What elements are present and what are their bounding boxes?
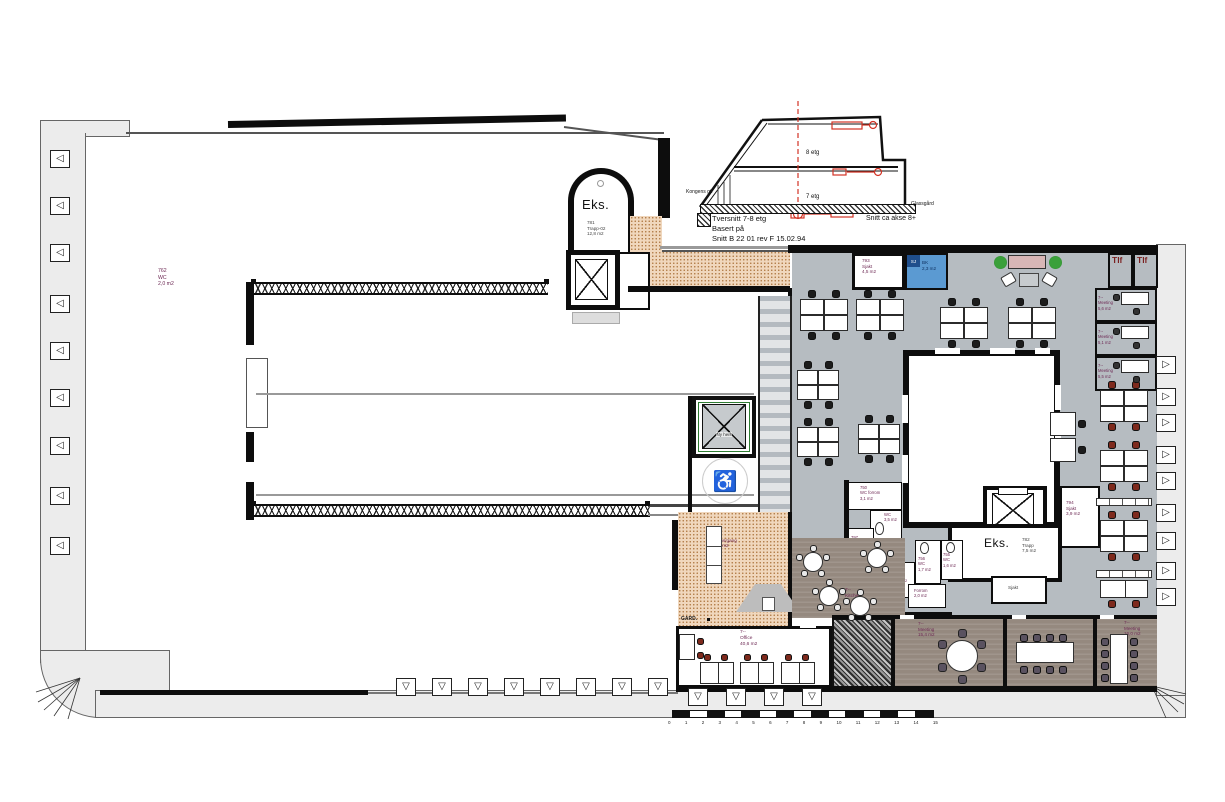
desk xyxy=(1100,520,1124,536)
chair xyxy=(972,340,980,348)
wheelchair-turning-circle: ♿ xyxy=(702,458,748,504)
section-floor8-label: 8 etg xyxy=(806,150,819,156)
scale-tick-label: 4 xyxy=(735,720,738,725)
chair xyxy=(1040,340,1048,348)
desk xyxy=(1032,323,1056,339)
chair xyxy=(1113,362,1120,369)
scale-tick-label: 13 xyxy=(894,720,899,725)
atrium-roof-line2 xyxy=(256,494,754,496)
chair xyxy=(848,614,855,621)
plant xyxy=(994,256,1007,269)
desk xyxy=(964,307,988,323)
chair xyxy=(697,652,704,659)
core-window-gap xyxy=(990,348,1015,354)
column-strip xyxy=(758,296,792,512)
label-line: 5,1 m2 xyxy=(1098,340,1113,345)
chair xyxy=(977,663,986,672)
desk xyxy=(940,307,964,323)
desk xyxy=(824,315,848,331)
desk xyxy=(1050,412,1076,436)
scale-tick-label: 15 xyxy=(933,720,938,725)
corridor-north-bottom-wall xyxy=(628,286,790,292)
desk xyxy=(740,662,774,684)
desk xyxy=(1032,307,1056,323)
chair xyxy=(870,598,877,605)
chair xyxy=(832,290,840,298)
chair xyxy=(1108,483,1116,491)
window-symbol: ▽ xyxy=(764,688,784,706)
chair xyxy=(1033,634,1041,642)
desk xyxy=(1100,450,1124,466)
chair xyxy=(887,550,894,557)
desk xyxy=(1100,536,1124,552)
atrium-top-glazing xyxy=(254,282,548,295)
bk-tag-text: SJ xyxy=(911,259,916,264)
label-line: 7,5 m2 xyxy=(1022,548,1036,554)
desk xyxy=(781,662,815,684)
counter xyxy=(1096,570,1152,578)
chair xyxy=(721,654,728,661)
chair xyxy=(874,541,881,548)
scale-bar-segment xyxy=(864,711,881,717)
room-label-trapp781: 781 Trapp-02 12,8 m2 xyxy=(587,220,605,237)
desk xyxy=(856,315,880,331)
chair xyxy=(1113,294,1120,301)
chair xyxy=(826,579,833,586)
chair xyxy=(886,455,894,463)
chair xyxy=(865,415,873,423)
chair xyxy=(697,638,704,645)
desk xyxy=(800,299,824,315)
chair xyxy=(1108,553,1116,561)
chair xyxy=(860,550,867,557)
window-symbol: ◁ xyxy=(50,389,70,407)
core-window-gap xyxy=(1055,385,1061,410)
toilet-fixture xyxy=(946,542,955,553)
chair xyxy=(744,654,751,661)
scale-tick-label: 11 xyxy=(856,720,861,725)
label-line: 1,7 m2 xyxy=(918,567,931,572)
stair-tower-circle xyxy=(597,180,604,187)
desk xyxy=(818,370,839,385)
section-ground-hatch xyxy=(700,204,916,214)
chair xyxy=(804,458,812,466)
desk xyxy=(1008,323,1032,339)
north-wall-segment xyxy=(658,138,670,218)
scale-bar-segment xyxy=(916,711,933,717)
core-window-gap xyxy=(935,348,960,354)
outer-wall-right xyxy=(1156,244,1186,696)
plant xyxy=(1049,256,1062,269)
scale-tick-label: 8 xyxy=(803,720,806,725)
scale-tick-label: 9 xyxy=(820,720,823,725)
chair xyxy=(888,290,896,298)
floor-plan: 8 etg 7 etg Kongens gt. Glassgård Tversn… xyxy=(0,0,1225,802)
desk xyxy=(1100,406,1124,422)
chair xyxy=(1130,674,1138,682)
scale-tick-label: 12 xyxy=(875,720,880,725)
scale-tick-label: 7 xyxy=(786,720,789,725)
desk xyxy=(1121,360,1149,373)
room-sjakt-under xyxy=(991,576,1047,604)
garderobe-marker xyxy=(707,618,710,621)
chair xyxy=(1046,634,1054,642)
desk xyxy=(824,299,848,315)
label-line: 5,6 m2 xyxy=(1098,306,1113,311)
chair xyxy=(948,298,956,306)
chair xyxy=(1130,650,1138,658)
bk-tag: SJ xyxy=(907,255,920,267)
scale-bar xyxy=(672,710,934,718)
chair xyxy=(1059,666,1067,674)
partition-wall xyxy=(891,618,895,690)
elevator-new-label-wrap: Ny heis xyxy=(702,423,746,441)
elevator-core-hat xyxy=(998,487,1028,495)
caption-line: Tversnitt 7-8 etg xyxy=(712,214,805,224)
garderobe-label: GARD. xyxy=(681,616,697,622)
chair xyxy=(865,566,872,573)
window-symbol: ◁ xyxy=(50,487,70,505)
label-line: 3,9 m2 xyxy=(1066,511,1080,517)
label-line: Sjakt xyxy=(1008,585,1018,591)
chair xyxy=(958,629,967,638)
caption-line: Basert på xyxy=(712,224,805,234)
room-label-wc35: WC 3,5 m2 xyxy=(884,512,897,523)
window-symbol: ▽ xyxy=(576,678,596,696)
label-line: 2,0 m2 xyxy=(158,281,174,288)
core-window-gap xyxy=(902,455,908,483)
desk xyxy=(1124,390,1148,406)
chair xyxy=(865,614,872,621)
chair xyxy=(1113,328,1120,335)
section-glassgard-label: Glassgård xyxy=(911,201,934,207)
atrium-roof-line1 xyxy=(256,393,754,395)
room-label-forrom: Forrom 2,0 m2 xyxy=(914,588,928,599)
chair xyxy=(1108,600,1116,608)
chair xyxy=(804,401,812,409)
chair xyxy=(888,332,896,340)
desk xyxy=(1124,406,1148,422)
desk xyxy=(858,424,879,439)
chair xyxy=(1133,376,1140,383)
chair xyxy=(704,654,711,661)
atrium-left-wall-gap xyxy=(246,462,254,482)
scale-tick-label: 5 xyxy=(752,720,755,725)
label-line: 3,5 m2 xyxy=(884,517,897,522)
chair xyxy=(1132,511,1140,519)
scale-tick-label: 6 xyxy=(769,720,772,725)
chair xyxy=(1020,634,1028,642)
chair xyxy=(1078,420,1086,428)
chair xyxy=(1108,423,1116,431)
elevator-new-label: Ny heis xyxy=(716,432,731,437)
caption-line: Snitt B 22 01 rev F 15.02.94 xyxy=(712,234,805,244)
scale-tick-label: 3 xyxy=(719,720,722,725)
chair xyxy=(1132,600,1140,608)
room-label-wc756: 756 WC 1,7 m2 xyxy=(918,556,931,572)
chair xyxy=(832,332,840,340)
chair xyxy=(1046,666,1054,674)
window-symbol: ▽ xyxy=(802,688,822,706)
chair xyxy=(865,455,873,463)
scale-bar-segment xyxy=(673,711,690,717)
window-symbol: ◁ xyxy=(50,342,70,360)
chair xyxy=(938,640,947,649)
section-floor7-label: 7 etg xyxy=(806,194,819,200)
chair xyxy=(804,361,812,369)
desk xyxy=(1008,307,1032,323)
desk xyxy=(800,315,824,331)
chair xyxy=(958,675,967,684)
door-gap xyxy=(1100,615,1114,619)
label-line: 3,1 m2 xyxy=(860,496,880,501)
desk xyxy=(1121,292,1149,305)
roof-joint-line xyxy=(660,246,790,249)
scale-bar-segment xyxy=(794,711,811,717)
chair xyxy=(839,588,846,595)
window-symbol: ◁ xyxy=(50,537,70,555)
window-symbol: ▽ xyxy=(612,678,632,696)
chair xyxy=(1132,441,1140,449)
desk xyxy=(679,634,695,660)
desk xyxy=(1100,580,1148,598)
label-line: 2,0 m2 xyxy=(914,593,928,598)
chair xyxy=(823,554,830,561)
chair xyxy=(825,361,833,369)
chair xyxy=(977,640,986,649)
existing-label-782: Eks. xyxy=(984,536,1009,550)
chair xyxy=(817,604,824,611)
desk xyxy=(797,385,818,400)
room-label-meeting154: 7-- Meeting 15,4 m2 xyxy=(918,621,935,638)
chair xyxy=(1101,662,1109,670)
chair xyxy=(1132,423,1140,431)
desk xyxy=(1124,450,1148,466)
scale-tick-label: 14 xyxy=(913,720,918,725)
window-symbol: ▽ xyxy=(432,678,452,696)
scale-bar-segment xyxy=(898,711,915,717)
east-wing-top-wall xyxy=(788,245,1158,253)
window-symbol: ◁ xyxy=(50,244,70,262)
chair xyxy=(948,340,956,348)
scale-tick-label: 0 xyxy=(668,720,671,725)
desk xyxy=(879,424,900,439)
room-label-wc762: 762 WC 2,0 m2 xyxy=(158,268,174,288)
chair xyxy=(1108,381,1116,389)
column-marker xyxy=(251,501,256,506)
desk xyxy=(797,427,818,442)
partition-wall xyxy=(1093,618,1097,690)
chair xyxy=(818,570,825,577)
window-symbol: ▷ xyxy=(1156,414,1176,432)
room-label-sjakt793: 793 Sjakt 4,5 m2 xyxy=(862,258,876,275)
desk xyxy=(797,442,818,457)
section-street-label: Kongens gt. xyxy=(686,189,713,195)
scale-bar-segment xyxy=(742,711,759,717)
scale-bar-segment xyxy=(760,711,777,717)
door-gap xyxy=(900,615,914,619)
existing-label-781: Eks. xyxy=(582,197,609,212)
chair xyxy=(1132,553,1140,561)
chair xyxy=(1108,511,1116,519)
label-line: 15,4 m2 xyxy=(918,632,935,638)
meeting-table xyxy=(1016,642,1074,663)
label-line: 40,6 m2 xyxy=(740,642,757,648)
scale-bar-segment xyxy=(881,711,898,717)
room-label-bk: BK 2,3 m2 xyxy=(922,260,936,271)
chair xyxy=(1133,308,1140,315)
scale-bar-segment xyxy=(812,711,829,717)
desk xyxy=(818,385,839,400)
atrium-bottom-glazing xyxy=(254,504,650,517)
desk xyxy=(1124,536,1148,552)
chair xyxy=(1016,340,1024,348)
elevator-core-car xyxy=(992,493,1034,528)
chair xyxy=(1059,634,1067,642)
toilet-fixture xyxy=(875,522,884,535)
meeting-table xyxy=(1110,634,1128,684)
elevator-landing xyxy=(572,312,620,324)
desk xyxy=(1100,466,1124,482)
chair xyxy=(864,290,872,298)
scale-tick-label: 10 xyxy=(836,720,841,725)
window-symbol: ▷ xyxy=(1156,446,1176,464)
window-symbol: ▷ xyxy=(1156,472,1176,490)
scale-bar-segment xyxy=(777,711,794,717)
top-boundary-line xyxy=(126,132,664,134)
chair xyxy=(857,589,864,596)
desk xyxy=(880,315,904,331)
chair xyxy=(1101,638,1109,646)
chair xyxy=(808,332,816,340)
chair xyxy=(1033,666,1041,674)
chair xyxy=(802,654,809,661)
label-line: Meeting xyxy=(1098,300,1113,305)
chair xyxy=(825,458,833,466)
chair xyxy=(1078,446,1086,454)
window-symbol: ▷ xyxy=(1156,388,1176,406)
chair xyxy=(1130,662,1138,670)
chair xyxy=(1130,638,1138,646)
desk xyxy=(940,323,964,339)
window-symbol: ◁ xyxy=(50,295,70,313)
chair xyxy=(1101,674,1109,682)
scale-bar-segment xyxy=(846,711,863,717)
scale-tick-label: 1 xyxy=(685,720,688,725)
window-symbol: ▷ xyxy=(1156,588,1176,606)
window-symbol: ▷ xyxy=(1156,562,1176,580)
chair xyxy=(785,654,792,661)
chair xyxy=(1132,483,1140,491)
section-ground-block xyxy=(697,213,711,227)
chair xyxy=(825,401,833,409)
elevator-forrom xyxy=(618,252,650,310)
chair xyxy=(938,663,947,672)
label-line: 2,3 m2 xyxy=(922,266,936,272)
bottom-inner-wall-west xyxy=(100,690,368,695)
room-label-wc-forrom750: 750 WC forrom 3,1 m2 xyxy=(860,485,880,501)
column-marker xyxy=(544,279,549,284)
chair xyxy=(808,290,816,298)
tlf-right-label: Tlf xyxy=(1137,255,1147,265)
bench xyxy=(706,526,722,584)
scale-bar-segment xyxy=(829,711,846,717)
desk xyxy=(880,299,904,315)
window-symbol: ▷ xyxy=(1156,532,1176,550)
chair xyxy=(801,570,808,577)
desk xyxy=(964,323,988,339)
desk xyxy=(818,442,839,457)
section-caption: Tversnitt 7-8 etg Basert på Snitt B 22 0… xyxy=(712,214,805,244)
chair xyxy=(761,654,768,661)
corridor-north-topline xyxy=(662,250,788,252)
repos-west-wall xyxy=(672,520,678,590)
office-door-gap xyxy=(800,624,816,628)
lounge-table xyxy=(1019,273,1039,287)
window-symbol: ◁ xyxy=(50,197,70,215)
label-line: Meeting xyxy=(1098,334,1113,339)
chair xyxy=(882,566,889,573)
desk xyxy=(700,662,734,684)
desk xyxy=(1121,326,1149,339)
room-trapp782 xyxy=(948,524,1062,582)
chair xyxy=(804,418,812,426)
scale-bar-segment xyxy=(708,711,725,717)
room-label-sjakt-under: Sjakt xyxy=(1008,585,1018,591)
lounge-sofa xyxy=(1008,255,1046,269)
label-line: 4,5 m2 xyxy=(862,269,876,275)
desk xyxy=(858,439,879,454)
scale-bar-segment xyxy=(725,711,742,717)
column-marker xyxy=(251,279,256,284)
door-gap xyxy=(1012,615,1026,619)
chair xyxy=(1108,441,1116,449)
window-symbol: ◁ xyxy=(50,150,70,168)
wheelchair-icon: ♿ xyxy=(713,469,738,494)
core-window-gap xyxy=(902,395,908,423)
scale-bar-segment xyxy=(690,711,707,717)
chair xyxy=(1101,650,1109,658)
atrium-bottom-line1 xyxy=(648,504,760,507)
elevator-781-car xyxy=(575,259,608,300)
label-line: 1,6 m2 xyxy=(943,563,956,568)
section-axis-note: Snitt ca akse 8+ xyxy=(866,214,916,223)
room-label-meeting-b: 7-- Meeting 5,1 m2 xyxy=(1098,329,1113,345)
window-symbol: ▽ xyxy=(504,678,524,696)
room-label-wc755: 755 WC 1,6 m2 xyxy=(943,552,956,568)
room-disp-hatched xyxy=(832,618,893,690)
chair xyxy=(825,418,833,426)
desk xyxy=(1100,390,1124,406)
tlf-left-label: Tlf xyxy=(1112,255,1122,265)
room-label-trapp782: 782 Trapp 7,5 m2 xyxy=(1022,537,1036,554)
corner-fan-bottom-left xyxy=(34,674,86,720)
stair-podium-step xyxy=(762,597,775,611)
desk xyxy=(818,427,839,442)
chair xyxy=(1040,298,1048,306)
toilet-fixture xyxy=(920,542,929,554)
window-symbol: ▽ xyxy=(540,678,560,696)
counter xyxy=(1096,498,1152,506)
desk xyxy=(856,299,880,315)
window-symbol: ▽ xyxy=(648,678,668,696)
desk xyxy=(1050,438,1076,462)
window-symbol: ▽ xyxy=(726,688,746,706)
window-symbol: ▽ xyxy=(468,678,488,696)
window-symbol: ▷ xyxy=(1156,356,1176,374)
window-symbol: ▷ xyxy=(1156,504,1176,522)
room-label-sjakt794: 794 Sjakt 3,9 m2 xyxy=(1066,500,1080,517)
